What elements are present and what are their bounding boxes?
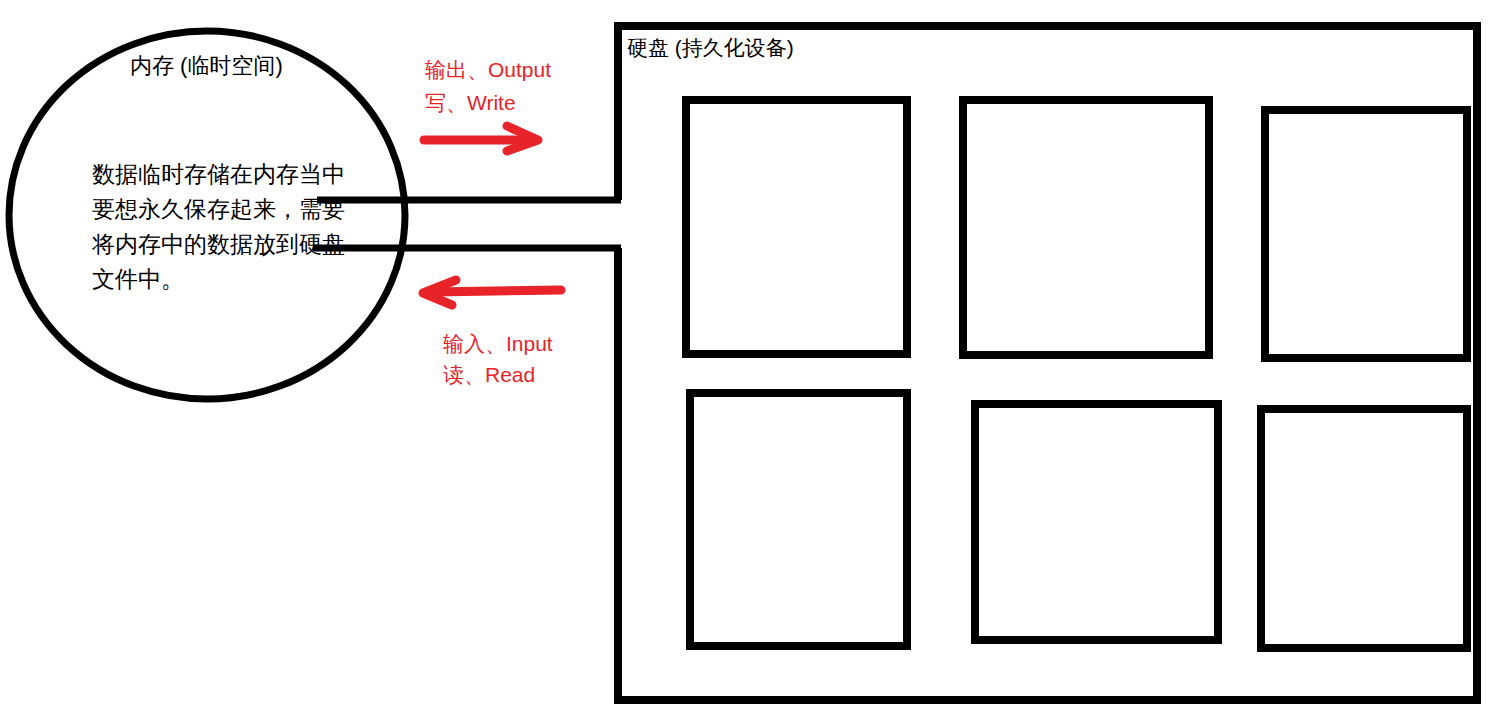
memory-body-line: 将内存中的数据放到硬盘 [91, 231, 345, 257]
file-slot-3 [1265, 110, 1467, 358]
memory-title: 内存 (临时空间) [130, 53, 283, 78]
disk-group: 硬盘 (持久化设备) [618, 26, 1477, 700]
memory-body-line: 要想永久保存起来，需要 [92, 196, 345, 222]
file-slot-5 [975, 404, 1218, 640]
file-slot-6 [1261, 409, 1467, 648]
diagram-canvas: 内存 (临时空间) 数据临时存储在内存当中 要想永久保存起来，需要 将内存中的数… [0, 0, 1494, 720]
disk-title: 硬盘 (持久化设备) [627, 36, 794, 59]
memory-body-line: 数据临时存储在内存当中 [92, 161, 345, 187]
memory-disk-diagram: 内存 (临时空间) 数据临时存储在内存当中 要想永久保存起来，需要 将内存中的数… [0, 0, 1494, 720]
memory-group: 内存 (临时空间) 数据临时存储在内存当中 要想永久保存起来，需要 将内存中的数… [9, 31, 405, 399]
output-flow-group: 输出、Output 写、Write [424, 58, 551, 151]
file-slot-1 [686, 100, 907, 354]
input-flow-group: 输入、Input 读、Read [423, 280, 561, 386]
right-arrow-icon [424, 126, 538, 151]
read-label: 读、Read [443, 363, 535, 386]
left-arrow-icon [423, 280, 561, 305]
file-slot-2 [963, 100, 1209, 355]
connector-pipe [313, 200, 621, 248]
file-slot-4 [690, 393, 907, 646]
write-label: 写、Write [425, 91, 516, 114]
memory-body-line: 文件中。 [92, 266, 184, 292]
output-label: 输出、Output [425, 58, 551, 81]
input-label: 输入、Input [443, 332, 553, 355]
